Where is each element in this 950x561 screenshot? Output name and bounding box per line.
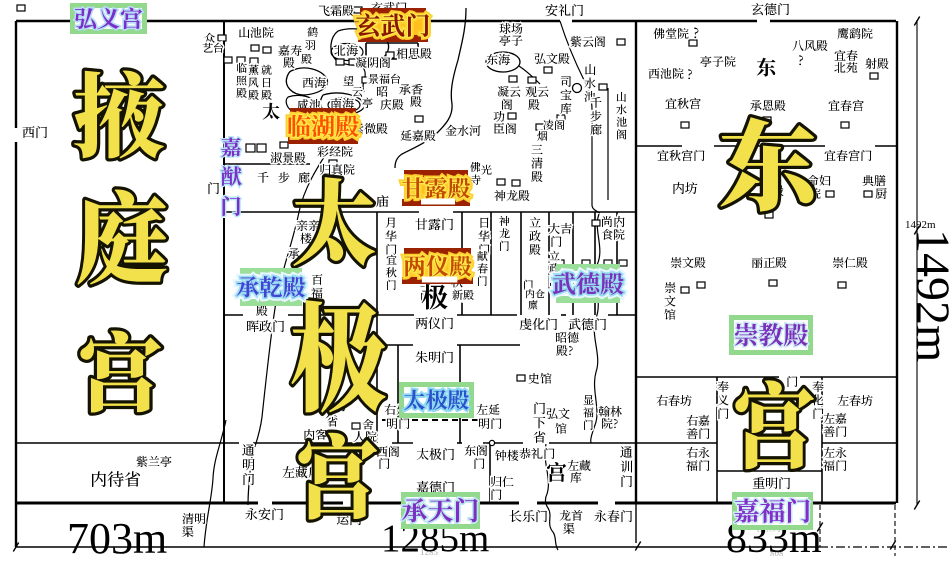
- svg-text:院?: 院?: [601, 415, 618, 432]
- svg-text:临湖殿: 临湖殿: [287, 107, 360, 142]
- svg-text:门: 门: [473, 455, 485, 472]
- svg-text:寺: 寺: [470, 172, 481, 188]
- svg-text:东: 东: [756, 52, 776, 81]
- svg-text:武德门: 武德门: [568, 314, 607, 333]
- svg-text:殿: 殿: [410, 93, 422, 110]
- svg-text:光: 光: [481, 162, 492, 178]
- svg-text:厨: 厨: [875, 185, 887, 202]
- svg-text:永春门: 永春门: [594, 506, 633, 525]
- svg-text:门: 门: [242, 469, 255, 488]
- svg-text:钟楼: 钟楼: [495, 447, 519, 464]
- svg-text:亭: 亭: [362, 95, 373, 111]
- svg-text:佛堂院: 佛堂院: [653, 25, 689, 42]
- svg-text:殿: 殿: [528, 96, 540, 113]
- svg-text:朱明门: 朱明门: [415, 347, 454, 366]
- svg-text:猷: 猷: [221, 161, 242, 191]
- svg-text:相思殿: 相思殿: [395, 45, 432, 62]
- svg-text:太: 太: [262, 98, 280, 124]
- svg-text:射殿: 射殿: [865, 55, 889, 72]
- svg-text:虔化门: 虔化门: [519, 314, 558, 333]
- svg-text:福门: 福门: [823, 457, 847, 474]
- svg-text:太极殿: 太极殿: [403, 384, 469, 415]
- svg-text:左春坊: 左春坊: [837, 392, 873, 409]
- svg-text:掖: 掖: [73, 44, 165, 176]
- svg-text:凝阴阁: 凝阴阁: [355, 54, 391, 71]
- svg-text:库: 库: [560, 100, 572, 117]
- svg-text:玄武门: 玄武门: [355, 6, 430, 42]
- svg-text:渠: 渠: [563, 520, 575, 537]
- svg-text:东海: 东海: [486, 51, 510, 68]
- svg-text:宜秋宫门: 宜秋宫门: [657, 147, 705, 164]
- svg-text:紫云阁: 紫云阁: [570, 33, 606, 50]
- svg-text:弘义宫: 弘义宫: [74, 1, 143, 34]
- svg-text:门: 门: [583, 417, 594, 433]
- svg-text:西海: 西海: [302, 74, 326, 91]
- svg-text:明门: 明门: [478, 415, 502, 432]
- svg-text:门: 门: [717, 405, 729, 422]
- svg-text:门: 门: [221, 191, 242, 221]
- svg-text:殿: 殿: [531, 168, 543, 185]
- svg-text:西池院: 西池院: [648, 65, 684, 82]
- svg-text:崇文殿: 崇文殿: [670, 254, 706, 271]
- svg-text:门: 门: [207, 178, 220, 197]
- svg-text:臣阁: 臣阁: [493, 120, 517, 137]
- svg-text:善门: 善门: [686, 425, 710, 442]
- svg-text:?: ?: [687, 64, 693, 83]
- svg-text:西门: 西门: [22, 122, 48, 141]
- svg-text:殿: 殿: [248, 87, 259, 103]
- svg-text:1492m: 1492m: [906, 229, 950, 362]
- svg-text:渠: 渠: [182, 523, 194, 540]
- svg-text:?: ?: [693, 23, 699, 43]
- svg-text:崇教殿: 崇教殿: [733, 316, 808, 352]
- svg-text:殿: 殿: [301, 51, 312, 67]
- svg-text:殿: 殿: [283, 54, 295, 71]
- svg-text:长乐门: 长乐门: [509, 506, 548, 525]
- svg-text:太: 太: [292, 149, 377, 285]
- svg-text:延嘉殿: 延嘉殿: [400, 127, 436, 144]
- svg-text:福门: 福门: [686, 457, 710, 474]
- svg-text:省: 省: [533, 427, 546, 446]
- svg-text:殿: 殿: [236, 85, 247, 101]
- svg-text:食院: 食院: [601, 226, 625, 243]
- svg-text:宫: 宫: [77, 305, 163, 429]
- svg-text:亭子: 亭子: [499, 32, 523, 49]
- svg-text:宫: 宫: [732, 354, 816, 487]
- svg-text:宜春宫门: 宜春宫门: [824, 147, 872, 164]
- svg-text:弘文殿: 弘文殿: [534, 50, 570, 67]
- svg-text:太极门: 太极门: [416, 444, 455, 463]
- svg-text:?: ?: [798, 50, 804, 69]
- svg-text:庭: 庭: [76, 161, 168, 305]
- svg-text:宫: 宫: [295, 407, 379, 538]
- svg-text:鹰鹞院: 鹰鹞院: [837, 25, 873, 42]
- svg-text:甘露门: 甘露门: [415, 214, 454, 233]
- svg-text:内待省: 内待省: [90, 465, 141, 490]
- svg-text:廪: 廪: [528, 296, 538, 311]
- svg-text:新殿: 新殿: [452, 287, 474, 303]
- svg-text:门: 门: [378, 455, 390, 472]
- svg-text:永安门: 永安门: [245, 504, 284, 523]
- svg-text:门: 门: [490, 486, 502, 503]
- svg-text:紫兰亭: 紫兰亭: [136, 453, 172, 470]
- svg-text:善门: 善门: [823, 423, 847, 440]
- svg-text:金水河: 金水河: [444, 122, 481, 139]
- svg-text:宫: 宫: [546, 457, 567, 487]
- svg-text:殿?: 殿?: [556, 342, 573, 359]
- svg-text:武德殿: 武德殿: [552, 264, 625, 299]
- svg-text:门: 门: [499, 238, 510, 254]
- svg-text:嘉福门: 嘉福门: [733, 491, 811, 528]
- svg-text:内坊: 内坊: [672, 178, 698, 197]
- svg-text:宜春宫: 宜春宫: [828, 97, 864, 114]
- svg-text:门: 门: [620, 471, 633, 490]
- svg-text:门: 门: [477, 273, 488, 289]
- svg-text:嘉: 嘉: [221, 132, 242, 162]
- svg-text:北苑: 北苑: [834, 59, 859, 76]
- svg-text:史馆: 史馆: [528, 370, 552, 387]
- svg-text:安礼门: 安礼门: [545, 0, 584, 19]
- svg-text:馆: 馆: [664, 306, 676, 323]
- svg-text:703m: 703m: [67, 514, 167, 556]
- svg-text:东: 东: [719, 90, 818, 232]
- svg-text:亭子院: 亭子院: [700, 53, 736, 70]
- svg-text:艺台: 艺台: [202, 40, 224, 56]
- svg-text:丽正殿: 丽正殿: [751, 254, 787, 271]
- svg-text:崇仁殿: 崇仁殿: [832, 254, 868, 271]
- svg-text:廊: 廊: [590, 121, 602, 138]
- svg-text:馆: 馆: [555, 420, 567, 437]
- svg-text:右春坊: 右春坊: [656, 392, 692, 409]
- svg-text:门: 门: [386, 277, 397, 293]
- svg-text:庆殿: 庆殿: [380, 96, 404, 113]
- svg-text:庙: 庙: [376, 191, 389, 210]
- svg-text:阁: 阁: [616, 127, 627, 143]
- svg-text:两仪门: 两仪门: [415, 313, 454, 332]
- svg-text:神龙殿: 神龙殿: [494, 187, 530, 204]
- svg-text:千: 千: [257, 169, 269, 186]
- svg-text:殿: 殿: [529, 241, 541, 258]
- svg-text:承乾殿: 承乾殿: [237, 270, 306, 303]
- svg-text:飞霜殿: 飞霜殿: [318, 2, 354, 19]
- svg-text:步: 步: [278, 169, 291, 186]
- svg-text:库: 库: [570, 469, 582, 486]
- svg-text:门: 门: [550, 233, 562, 250]
- svg-text:宜秋宫: 宜秋宫: [665, 95, 701, 112]
- svg-text:玄德门: 玄德门: [751, 0, 790, 18]
- svg-text:山池院: 山池院: [238, 24, 274, 41]
- svg-text:承天门: 承天门: [401, 491, 479, 528]
